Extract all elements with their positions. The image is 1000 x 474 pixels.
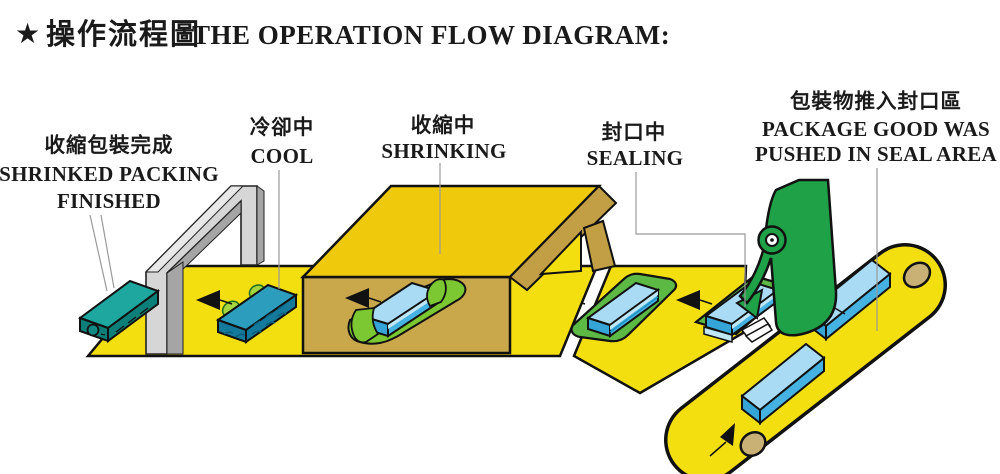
station-label-shrinking: 收縮中 SHRINKING <box>381 113 506 163</box>
title-zh: 操作流程圖 <box>46 18 201 51</box>
label-en: PUSHED IN SEAL AREA <box>755 142 998 166</box>
film-roll <box>759 227 786 254</box>
label-zh: 冷卻中 <box>250 115 315 139</box>
label-en: SEALING <box>587 146 684 170</box>
operation-flow-diagram: ★ 操作流程圖 THE OPERATION FLOW DIAGRAM: 收縮包裝… <box>0 0 1000 474</box>
label-zh: 封口中 <box>602 120 667 144</box>
label-en: SHRINKING <box>381 139 506 163</box>
label-en: COOL <box>250 144 313 168</box>
tunnel-exit-wall <box>584 221 615 271</box>
title-en: THE OPERATION FLOW DIAGRAM: <box>192 20 670 50</box>
station-label-infeed: 包裝物推入封口區 PACKAGE GOOD WAS PUSHED IN SEAL… <box>755 89 998 166</box>
label-en: PACKAGE GOOD WAS <box>762 117 990 141</box>
label-en: FINISHED <box>57 189 161 213</box>
station-label-sealing: 封口中 SEALING <box>587 120 684 170</box>
leader-finished <box>90 215 107 291</box>
leader-finished <box>101 215 114 288</box>
label-zh: 收縮中 <box>411 113 476 137</box>
label-zh: 包裝物推入封口區 <box>790 89 962 113</box>
label-en: SHRINKED PACKING <box>0 162 219 186</box>
shrink-wrinkle-ring <box>88 325 99 336</box>
label-zh: 收縮包裝完成 <box>45 133 174 157</box>
sealing-film <box>737 180 836 335</box>
page-title: ★ 操作流程圖 THE OPERATION FLOW DIAGRAM: <box>15 18 670 51</box>
station-label-cool: 冷卻中 COOL <box>250 115 315 168</box>
station-label-finished: 收縮包裝完成 SHRINKED PACKING FINISHED <box>0 133 219 213</box>
diagram-canvas: ★ 操作流程圖 THE OPERATION FLOW DIAGRAM: 收縮包裝… <box>0 0 1000 474</box>
star-icon: ★ <box>15 19 40 50</box>
